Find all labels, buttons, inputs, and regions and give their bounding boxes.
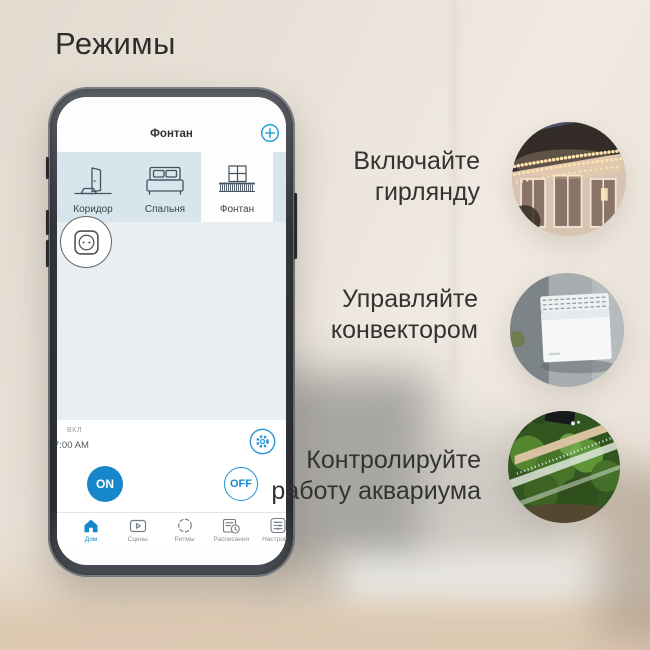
nav-label: Дом <box>85 536 98 543</box>
tab-label: Фонтан <box>220 204 254 215</box>
bottom-nav-bar: Дом Сцены Ритмы <box>57 512 286 549</box>
door-icon <box>71 164 115 200</box>
feature-line: работу аквариума <box>271 476 481 507</box>
aquarium-photo-illustration <box>508 411 620 523</box>
garland-lights-photo <box>512 122 626 236</box>
scenes-icon <box>128 517 148 534</box>
garland-photo-illustration <box>512 122 626 236</box>
convector-heater-photo <box>510 273 624 387</box>
convector-photo-illustration <box>510 273 624 387</box>
schedule-status-label: ВКЛ <box>67 427 82 434</box>
schedules-icon <box>221 517 241 534</box>
socket-icon <box>73 229 100 256</box>
aquarium-photo <box>508 411 620 523</box>
nav-item-settings[interactable]: Настройки <box>256 517 286 549</box>
feature-line: Включайте <box>353 146 480 177</box>
phone-side-button <box>46 157 49 179</box>
nav-item-home[interactable]: Дом <box>69 517 113 549</box>
app-header: Фонтан <box>57 97 286 152</box>
settings-icon <box>269 517 286 534</box>
nav-label: Настройки <box>262 536 286 543</box>
tab-corridor[interactable]: Коридор <box>57 152 129 222</box>
feature-text-convector: Управляйте конвектором <box>331 284 478 346</box>
marketing-slide: Режимы Фонтан <box>0 0 650 650</box>
nav-item-schedules[interactable]: Расписания <box>209 517 253 549</box>
tab-bedroom[interactable]: Спальня <box>129 152 201 222</box>
balcony-icon <box>215 164 259 200</box>
home-icon <box>82 517 100 534</box>
feature-text-garland: Включайте гирлянду <box>353 146 480 208</box>
nav-label: Сцены <box>128 536 148 543</box>
background-blur-counter <box>335 552 650 647</box>
page-title: Режимы <box>55 26 176 62</box>
rhythms-icon <box>176 517 194 534</box>
feature-text-aquarium: Контролируйте работу аквариума <box>271 445 481 507</box>
feature-line: Контролируйте <box>271 445 481 476</box>
phone-power-button <box>294 193 297 259</box>
phone-volume-up-button <box>46 210 49 235</box>
nav-item-rhythms[interactable]: Ритмы <box>163 517 207 549</box>
device-control-panel: ВКЛ 7:00 AM ON OFF <box>57 420 286 512</box>
nav-label: Ритмы <box>174 536 194 543</box>
background-blur-floor <box>0 602 650 650</box>
phone-mockup: Фонтан Коридор <box>48 87 295 577</box>
tab-label: Коридор <box>73 204 113 215</box>
feature-line: конвектором <box>331 315 478 346</box>
on-button[interactable]: ON <box>87 466 123 502</box>
off-button[interactable]: OFF <box>224 467 258 501</box>
nav-item-scenes[interactable]: Сцены <box>116 517 160 549</box>
feature-line: Управляйте <box>331 284 478 315</box>
room-tab-bar: Коридор Спальня <box>57 152 286 222</box>
add-device-button[interactable] <box>260 123 280 143</box>
tab-label: Спальня <box>145 204 185 215</box>
schedule-time: 7:00 AM <box>57 440 89 451</box>
nav-label: Расписания <box>213 536 249 543</box>
plus-icon <box>260 123 280 143</box>
phone-screen: Фонтан Коридор <box>57 97 286 565</box>
phone-volume-down-button <box>46 240 49 267</box>
feature-line: гирлянду <box>353 177 480 208</box>
bed-icon <box>143 164 187 200</box>
tab-fountain[interactable]: Фонтан <box>201 152 273 222</box>
socket-device-button[interactable] <box>60 216 112 268</box>
room-title: Фонтан <box>150 128 193 140</box>
